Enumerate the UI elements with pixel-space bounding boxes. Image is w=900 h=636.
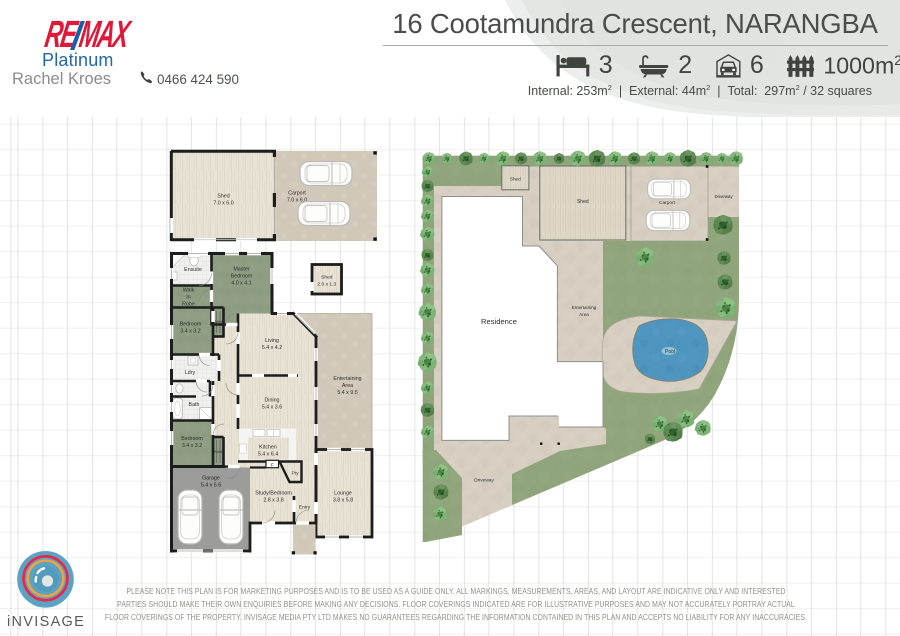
svg-text:5.4 x 6.4: 5.4 x 6.4 [258,452,278,458]
svg-text:F: F [271,462,274,468]
svg-text:4.0 x 4.1: 4.0 x 4.1 [231,281,251,287]
svg-text:7.0 x 6.0: 7.0 x 6.0 [213,201,233,207]
svg-text:Bath: Bath [189,402,200,408]
svg-text:Master: Master [233,267,249,273]
svg-text:Carport: Carport [659,200,676,206]
svg-text:Bedroom: Bedroom [181,436,203,442]
svg-text:5.4 x 3.6: 5.4 x 3.6 [262,405,282,411]
svg-text:Lounge: Lounge [334,491,352,497]
svg-text:Ensuite: Ensuite [184,267,202,273]
svg-text:Residence: Residence [481,317,517,326]
svg-text:3.4 x 3.2: 3.4 x 3.2 [180,329,200,335]
svg-text:Carport: Carport [288,191,306,197]
svg-text:Entertaining: Entertaining [572,305,597,310]
svg-text:Pty: Pty [291,471,299,477]
svg-text:Driveway: Driveway [714,194,733,199]
svg-text:Dining: Dining [264,398,279,404]
svg-text:Driveway: Driveway [474,478,494,484]
svg-text:Shed: Shed [577,199,589,205]
svg-text:Entertaining: Entertaining [333,376,361,382]
svg-text:Kitchen: Kitchen [259,445,277,451]
svg-text:3.8 x 5.8: 3.8 x 5.8 [333,498,353,504]
svg-text:Living: Living [265,338,279,344]
svg-text:Walk: Walk [183,288,195,294]
svg-text:5.4 x 9.5: 5.4 x 9.5 [337,390,357,396]
svg-text:Shed: Shed [321,275,333,281]
svg-text:Study/Bedroom: Study/Bedroom [255,491,292,497]
svg-text:Entry: Entry [299,505,311,511]
svg-text:Shed: Shed [510,177,521,182]
svg-text:Robe: Robe [214,450,223,454]
svg-text:5.4 x 4.2: 5.4 x 4.2 [262,345,282,351]
svg-text:Shed: Shed [217,194,229,200]
svg-text:5.4 x 5.6: 5.4 x 5.6 [201,483,221,489]
svg-text:In: In [186,295,190,301]
svg-text:2.0 x 1.3: 2.0 x 1.3 [317,282,336,288]
svg-text:Area: Area [342,383,353,389]
svg-text:Ldry: Ldry [185,370,196,376]
svg-text:Garage: Garage [202,476,220,482]
svg-text:Pool: Pool [665,349,675,355]
svg-text:Bedroom: Bedroom [231,274,253,280]
svg-text:3.4 x 3.2: 3.4 x 3.2 [182,443,202,449]
svg-text:2.8 x 3.8: 2.8 x 3.8 [263,498,283,504]
svg-text:Bedroom: Bedroom [180,322,202,328]
svg-text:Area: Area [579,312,589,317]
